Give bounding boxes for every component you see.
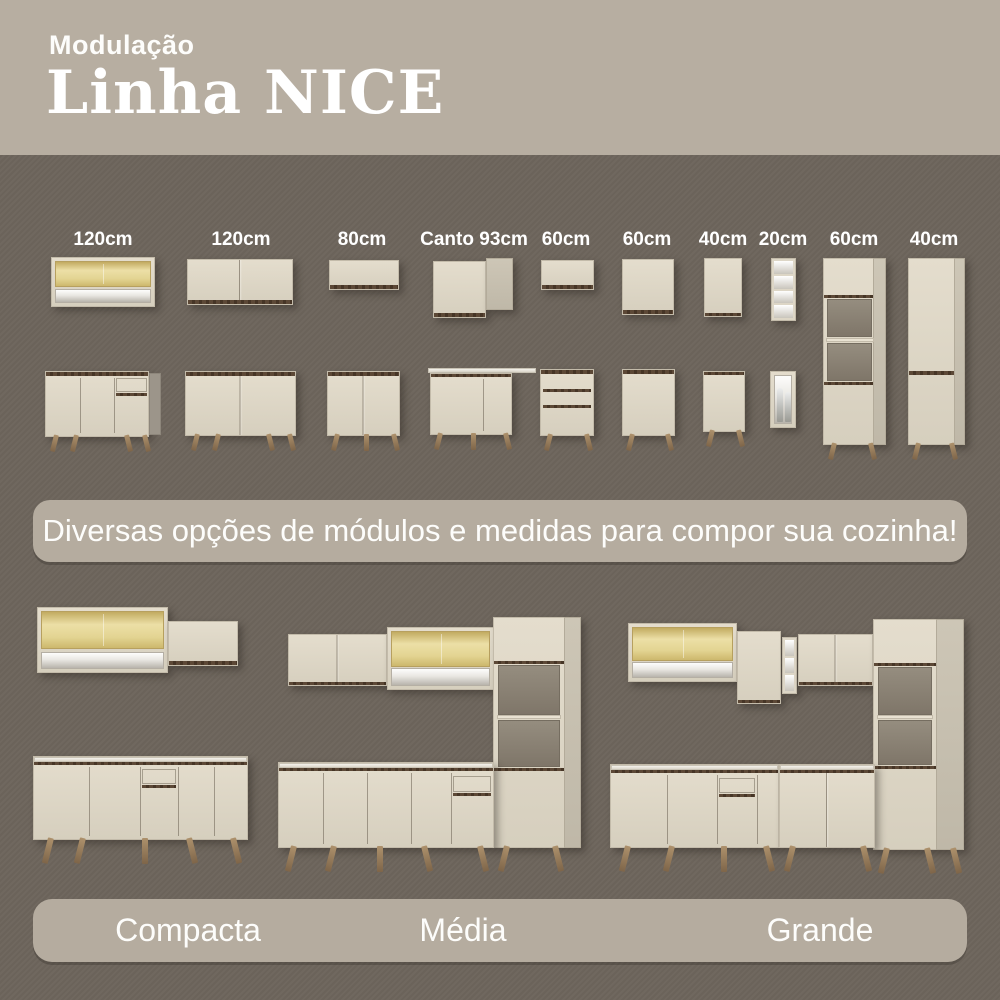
wood-strip: [431, 374, 511, 377]
niche-cell: [785, 675, 794, 691]
door-divider: [757, 775, 758, 844]
furniture-leg: [552, 845, 564, 872]
door-divider: [451, 773, 452, 844]
info-banner: Diversas opções de módulos e medidas par…: [33, 500, 967, 562]
open-shelf: [41, 652, 164, 669]
module-base-80-two-doors: [327, 371, 400, 436]
niche-cell: [774, 276, 793, 289]
module-wall-120-glass-shelf: [51, 257, 155, 307]
oven-niche-bottom: [498, 720, 560, 767]
oven-niche-bottom: [878, 720, 932, 765]
furniture-leg: [70, 434, 79, 452]
furniture-leg: [736, 429, 745, 447]
furniture-leg: [142, 434, 151, 452]
furniture-leg: [860, 845, 872, 872]
furniture-leg: [784, 845, 796, 872]
furniture-leg: [325, 845, 337, 872]
grande-wall-glass: [628, 623, 737, 682]
drawer-strip: [543, 405, 591, 408]
furniture-leg: [287, 433, 296, 451]
furniture-leg: [828, 442, 837, 460]
grande-base-right: [779, 764, 875, 848]
wood-strip: [799, 682, 872, 685]
module-wall-40-door: [704, 258, 742, 317]
furniture-leg: [285, 845, 297, 872]
niche-cell: [774, 291, 793, 304]
module-base-60-drawers: [540, 369, 594, 436]
grande-wall-two-doors: [798, 634, 873, 686]
furniture-leg: [950, 847, 962, 874]
module-base-40-door: [703, 371, 745, 432]
furniture-leg: [868, 442, 877, 460]
header: Modulação Linha NICE: [0, 0, 1000, 155]
furniture-leg: [471, 433, 476, 450]
size-label-media: Média: [363, 899, 563, 962]
module-label-120cm-a: 120cm: [48, 228, 158, 252]
header-subtitle: Modulação: [49, 30, 195, 61]
furniture-leg: [50, 434, 59, 452]
wood-strip: [705, 313, 741, 316]
drawer-front: [142, 769, 176, 784]
base-side-panel: [149, 373, 161, 435]
bottle: [777, 388, 783, 422]
door-divider: [717, 775, 718, 844]
open-shelf: [391, 668, 490, 686]
wood-strip: [34, 762, 247, 765]
wood-strip: [186, 372, 295, 376]
furniture-leg: [619, 845, 631, 872]
furniture-leg: [230, 837, 242, 864]
module-20-open-niche: [771, 258, 796, 321]
door-divider: [178, 767, 179, 836]
base-body: [45, 371, 149, 437]
module-wall-canto-93: [433, 258, 513, 318]
info-banner-text: Diversas opções de módulos e medidas par…: [33, 500, 967, 562]
door-divider: [89, 767, 90, 836]
niche-cell: [774, 261, 793, 274]
drawer-strip: [142, 785, 176, 788]
furniture-leg: [212, 433, 221, 451]
wood-strip: [780, 770, 874, 773]
grande-wall-corner: [737, 631, 781, 704]
wood-strip: [623, 370, 674, 374]
furniture-leg: [924, 847, 936, 874]
wood-strip: [542, 285, 593, 289]
size-banner: Compacta Média Grande: [33, 899, 967, 962]
wood-strip: [289, 682, 386, 685]
wood-strip: [623, 310, 673, 314]
furniture-leg: [331, 433, 340, 451]
furniture-leg: [42, 837, 54, 864]
door-divider: [367, 773, 368, 844]
drawer-front: [116, 378, 147, 392]
door-divider: [140, 767, 141, 836]
drawer-strip: [543, 389, 591, 392]
poster: Modulação Linha NICE 120cm 120cm 80cm Ca…: [0, 0, 1000, 1000]
module-base-60-door: [622, 369, 675, 436]
wood-strip: [494, 768, 564, 771]
wood-strip: [188, 300, 292, 304]
furniture-leg: [949, 442, 958, 460]
oven-niche-top: [498, 665, 560, 715]
module-wall-120-two-doors: [187, 259, 293, 305]
module-label-40cm-b: 40cm: [879, 228, 989, 252]
furniture-leg: [124, 434, 133, 452]
furniture-leg: [377, 846, 383, 872]
column-side-panel: [954, 258, 965, 445]
furniture-leg: [142, 838, 148, 864]
compacta-wall-glass: [37, 607, 168, 673]
bottle: [785, 392, 791, 422]
niche-cell: [774, 305, 793, 318]
furniture-leg: [503, 432, 512, 450]
module-wall-60-square: [622, 259, 674, 315]
wood-strip: [279, 768, 493, 771]
module-wall-80: [329, 260, 399, 290]
furniture-leg: [763, 845, 775, 872]
furniture-leg: [912, 442, 921, 460]
furniture-leg: [626, 433, 635, 451]
wood-strip: [330, 285, 398, 289]
wood-strip: [738, 700, 780, 703]
drawer-strip: [719, 794, 755, 797]
wood-strip: [909, 371, 954, 375]
niche-shelf: [826, 338, 874, 342]
wood-strip: [328, 372, 399, 376]
module-base-120-doors-drawer: [45, 371, 161, 437]
door-divider: [114, 378, 115, 433]
furniture-leg: [391, 433, 400, 451]
furniture-leg: [663, 845, 675, 872]
door-divider: [411, 773, 412, 844]
furniture-leg: [544, 433, 553, 451]
furniture-leg: [434, 432, 443, 450]
wood-strip: [611, 770, 778, 773]
module-label-80cm: 80cm: [307, 228, 417, 252]
module-base-120-two-doors: [185, 371, 296, 436]
glass-panel: [41, 611, 164, 649]
glass-panel: [55, 261, 151, 287]
furniture-leg: [498, 845, 510, 872]
niche-cell: [785, 640, 794, 656]
wood-strip: [494, 661, 564, 664]
drawer-front: [719, 778, 755, 793]
open-shelf: [55, 289, 151, 303]
media-tower: [493, 617, 581, 848]
wood-strip: [46, 372, 148, 376]
grande-cubby-column: [782, 637, 797, 694]
oven-niche-bottom: [827, 343, 872, 381]
furniture-leg: [477, 845, 489, 872]
furniture-leg: [706, 429, 715, 447]
drawer-front: [453, 776, 491, 792]
furniture-leg: [364, 434, 369, 451]
wood-strip: [704, 372, 744, 375]
compacta-base: [33, 756, 248, 840]
tower-side-panel: [936, 619, 964, 850]
door-divider: [483, 379, 484, 431]
furniture-leg: [186, 837, 198, 864]
wood-strip: [874, 766, 936, 769]
niche-shelf: [877, 715, 933, 719]
media-wall-two-doors: [288, 634, 387, 686]
furniture-leg: [665, 433, 674, 451]
module-base-20-bottle-rack: [770, 371, 796, 428]
wood-strip: [874, 663, 936, 666]
grande-tower: [873, 619, 964, 850]
tower-side-panel: [564, 617, 581, 848]
tower-side-panel: [873, 258, 886, 445]
wood-strip: [541, 370, 593, 374]
glass-panel: [391, 631, 490, 667]
furniture-leg: [878, 847, 890, 874]
open-shelf: [632, 662, 733, 678]
corner-door: [433, 261, 486, 318]
oven-niche-top: [827, 299, 872, 337]
size-label-grande: Grande: [720, 899, 920, 962]
base-body: [430, 373, 512, 435]
size-label-compacta: Compacta: [88, 899, 288, 962]
niche-shelf: [497, 715, 561, 719]
media-wall-glass: [387, 627, 494, 690]
page-title: Linha NICE: [46, 58, 444, 128]
door-divider: [323, 773, 324, 844]
module-column-40-pantry: [908, 258, 965, 445]
module-wall-60-horizontal: [541, 260, 594, 290]
furniture-leg: [421, 845, 433, 872]
module-label-120cm-b: 120cm: [186, 228, 296, 252]
furniture-leg: [191, 433, 200, 451]
door-divider: [214, 767, 215, 836]
door-divider: [667, 775, 668, 844]
wood-strip: [169, 661, 237, 665]
media-base: [278, 762, 494, 848]
corner-return-panel: [486, 258, 513, 310]
niche-cell: [785, 658, 794, 674]
wood-strip: [824, 382, 873, 385]
furniture-leg: [266, 433, 275, 451]
furniture-leg: [74, 837, 86, 864]
furniture-leg: [721, 846, 727, 872]
glass-panel: [632, 627, 733, 661]
compacta-wall-cabinet: [168, 621, 238, 666]
drawer-strip: [453, 793, 491, 796]
wood-strip: [434, 313, 485, 317]
module-tower-60-oven: [823, 258, 886, 445]
module-base-canto-93: [430, 368, 540, 438]
wood-strip: [116, 393, 147, 396]
oven-niche-top: [878, 667, 932, 715]
wood-strip: [824, 295, 873, 298]
door-divider: [80, 378, 81, 433]
grande-base-left: [610, 764, 779, 848]
furniture-leg: [584, 433, 593, 451]
